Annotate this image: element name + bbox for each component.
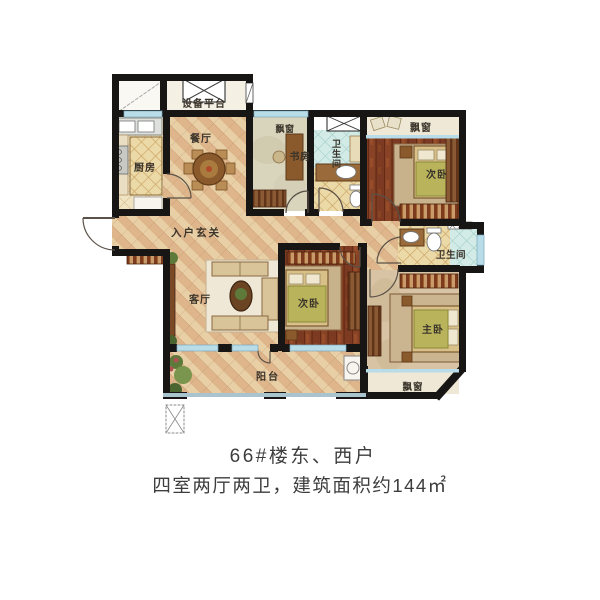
living-balcony-window-1: [177, 345, 218, 351]
room-label-bay-window-top: 飘窗: [410, 121, 432, 134]
room-label-dining: 餐厅: [189, 132, 212, 145]
room-label-study: 书房: [290, 150, 311, 163]
entry-door-icon: [83, 218, 115, 250]
bedroom-middle-window: [290, 345, 346, 351]
room-label-kitchen: 厨房: [134, 161, 156, 174]
caption-block: 66#楼东、西户 四室两厅两卫，建筑面积约144㎡: [152, 445, 447, 496]
room-label-bathroom-right: 卫生间: [436, 249, 466, 261]
room-label-master-bedroom: 主卧: [422, 323, 444, 336]
room-label-bedroom-top: 次卧: [426, 168, 448, 181]
room-label-bathroom-center: 卫生间: [331, 139, 341, 169]
balcony-railing: [163, 393, 366, 397]
room-label-entry-hall: 入户玄关: [171, 226, 221, 239]
master-bay-sill: [366, 369, 459, 373]
caption-line2: 四室两厅两卫，建筑面积约144㎡: [152, 475, 447, 496]
room-label-bedroom-middle: 次卧: [298, 297, 320, 310]
room-label-bay-window-study: 飘窗: [275, 123, 294, 134]
kitchen-window: [124, 111, 162, 117]
bathroom-right-window: [477, 235, 484, 265]
study-bay-window: [254, 111, 308, 117]
room-label-balcony: 阳台: [256, 370, 280, 383]
room-label-living-room: 客厅: [188, 293, 211, 306]
exterior-duct-symbol: [166, 405, 184, 433]
dining-table: [184, 150, 235, 190]
room-label-bay-window-master: 飘窗: [401, 381, 423, 393]
platform-door-icon: [246, 83, 253, 103]
caption-line1: 66#楼东、西户: [230, 445, 377, 467]
bedroom-top-bay-sill: [366, 135, 459, 139]
floorplan-drawing: 设备平台 餐厅 厨房 飘窗 书房 卫生间 飘窗 次卧 卫生间 主卧 飘窗 次卧 …: [0, 0, 600, 600]
living-balcony-window-2: [232, 345, 258, 351]
floorplan-page: 设备平台 餐厅 厨房 飘窗 书房 卫生间 飘窗 次卧 卫生间 主卧 飘窗 次卧 …: [0, 0, 600, 600]
room-label-equipment-platform: 设备平台: [182, 97, 226, 110]
